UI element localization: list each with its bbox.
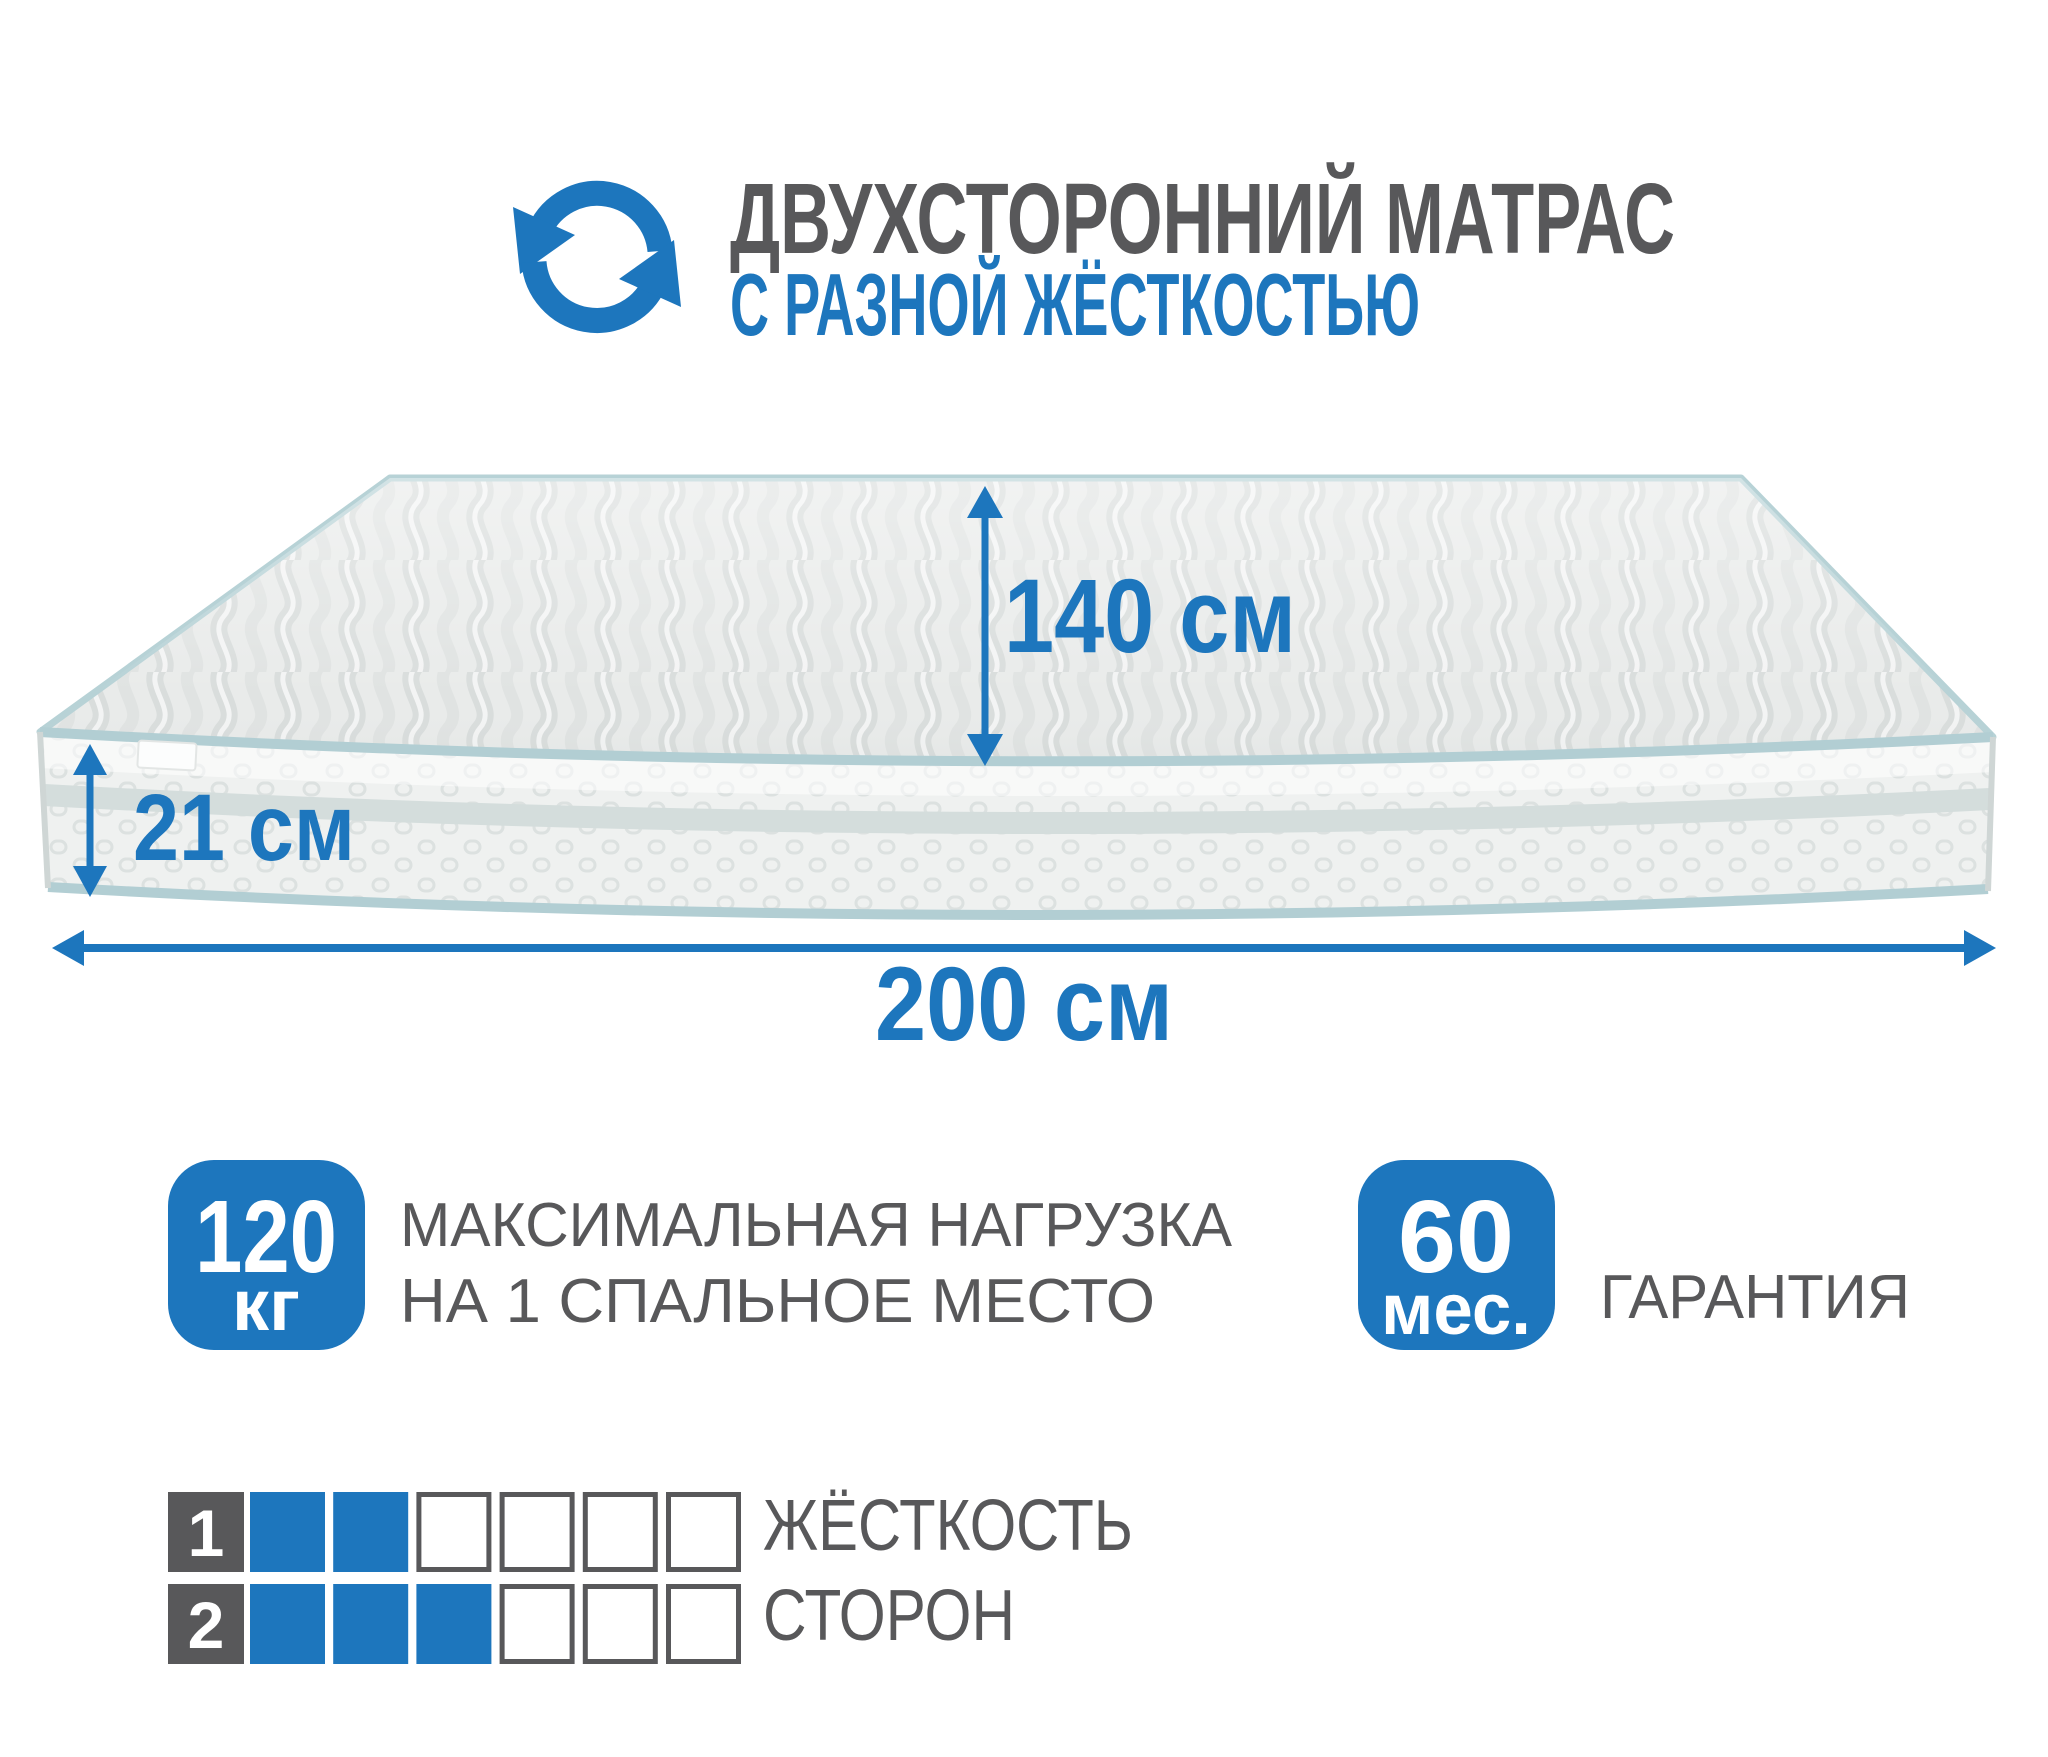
firmness-row-number: 2 xyxy=(188,1588,225,1662)
firmness-cell-filled xyxy=(250,1584,325,1664)
header: ДВУХСТОРОННИЙ МАТРАС С РАЗНОЙ ЖЁСТКОСТЬЮ xyxy=(513,162,1675,354)
firmness-cell-empty xyxy=(585,1587,655,1662)
firmness-chart: 12 ЖЁСТКОСТЬ СТОРОН xyxy=(168,1486,1133,1664)
firmness-cell-empty xyxy=(502,1495,572,1570)
width-label: 200 см xyxy=(875,946,1173,1063)
firmness-cell-filled xyxy=(250,1492,325,1572)
arrow-left-icon xyxy=(52,930,84,966)
infographic-poster: ДВУХСТОРОННИЙ МАТРАС С РАЗНОЙ ЖЁСТКОСТЬЮ… xyxy=(0,0,2048,1757)
firmness-cell-empty xyxy=(585,1495,655,1570)
mattress-label-tag xyxy=(137,741,196,771)
firmness-cell-empty xyxy=(669,1587,739,1662)
firmness-cell-filled xyxy=(416,1584,491,1664)
firmness-row-number: 1 xyxy=(188,1496,225,1570)
max-load-unit: кг xyxy=(232,1266,300,1346)
firmness-cell-empty xyxy=(669,1495,739,1570)
firmness-cell-empty xyxy=(502,1587,572,1662)
warranty-unit: мес. xyxy=(1381,1270,1531,1350)
max-load-badge: 120 кг МАКСИМАЛЬНАЯ НАГРУЗКА НА 1 СПАЛЬН… xyxy=(168,1160,1233,1350)
warranty-label: ГАРАНТИЯ xyxy=(1600,1263,1910,1332)
firmness-caption-line1: ЖЁСТКОСТЬ xyxy=(763,1486,1133,1566)
firmness-caption-line2: СТОРОН xyxy=(763,1576,1015,1656)
max-load-desc-line2: НА 1 СПАЛЬНОЕ МЕСТО xyxy=(400,1267,1155,1336)
firmness-cell-filled xyxy=(333,1584,408,1664)
max-load-desc-line1: МАКСИМАЛЬНАЯ НАГРУЗКА xyxy=(400,1191,1233,1260)
firmness-cell-empty xyxy=(419,1495,489,1570)
depth-label: 140 см xyxy=(1004,558,1296,675)
rotate-arrows-icon xyxy=(513,193,681,320)
arrow-right-icon xyxy=(1964,930,1996,966)
height-label: 21 см xyxy=(133,775,355,881)
warranty-badge: 60 мес. ГАРАНТИЯ xyxy=(1358,1160,1910,1350)
dimension-width: 200 см xyxy=(52,930,1996,1063)
page-subtitle: С РАЗНОЙ ЖЁСТКОСТЬЮ xyxy=(730,255,1420,354)
firmness-rows: 12 xyxy=(168,1492,739,1664)
firmness-cell-filled xyxy=(333,1492,408,1572)
